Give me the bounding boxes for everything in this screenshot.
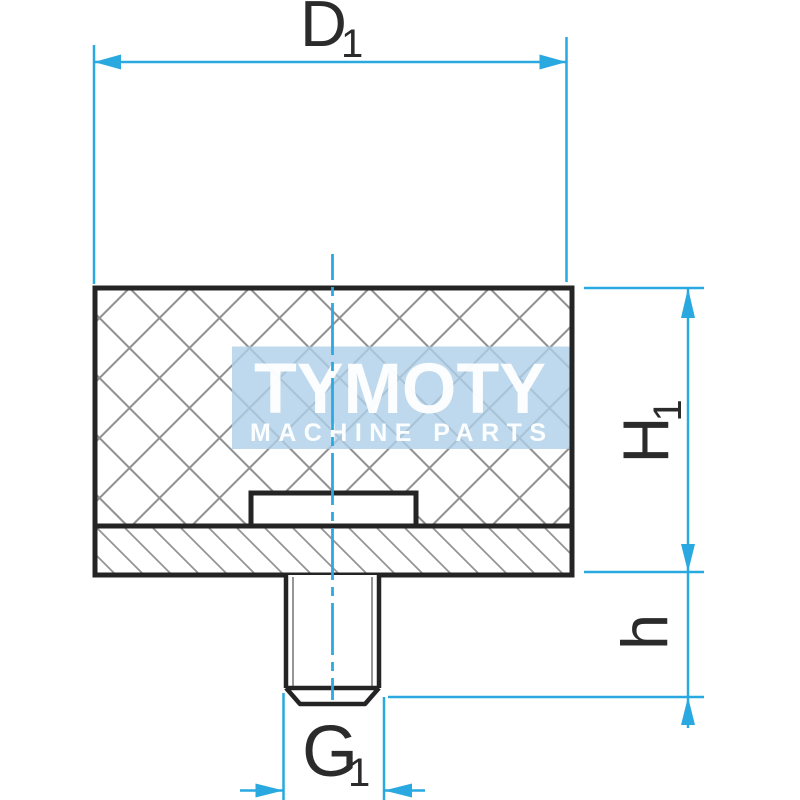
svg-text:h: h xyxy=(608,614,681,650)
svg-text:1: 1 xyxy=(348,751,370,795)
svg-text:H: H xyxy=(609,417,682,464)
svg-text:D: D xyxy=(300,0,347,60)
svg-text:1: 1 xyxy=(341,22,363,66)
svg-text:1: 1 xyxy=(646,399,690,421)
svg-text:TYMOTY: TYMOTY xyxy=(254,350,546,429)
